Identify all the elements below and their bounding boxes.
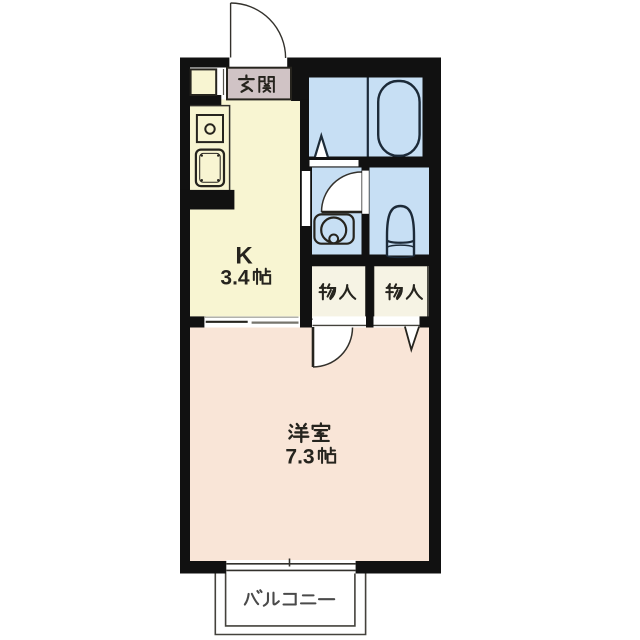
svg-text:K: K [235,243,253,270]
svg-text:7.3: 7.3 [285,446,314,469]
svg-text:3.4: 3.4 [220,267,250,290]
